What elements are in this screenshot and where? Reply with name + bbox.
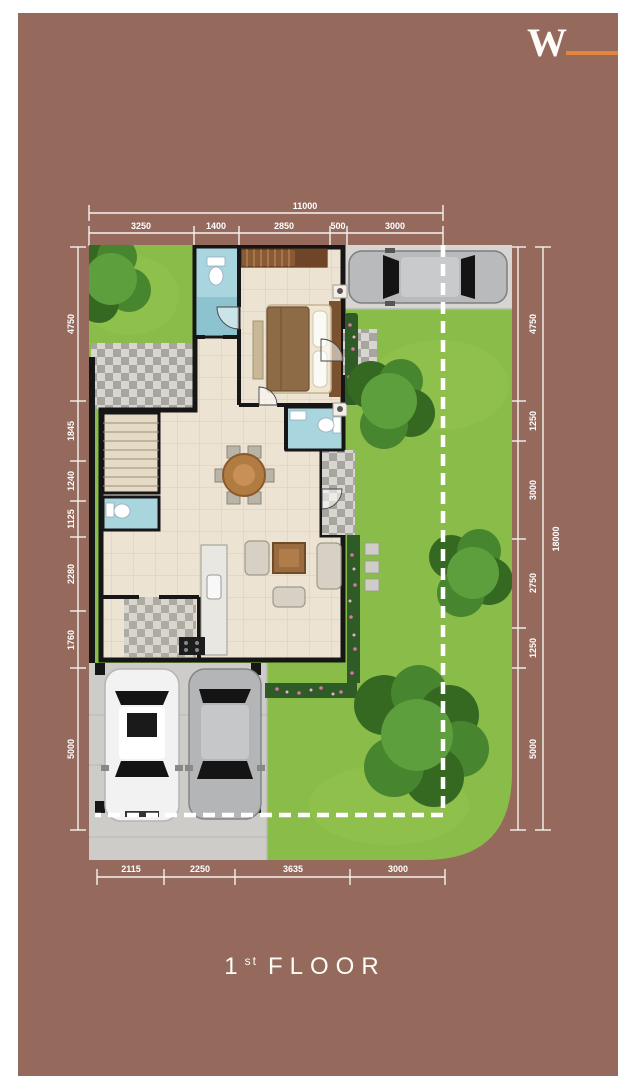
dim-bottom-2: 3635 — [283, 864, 303, 874]
dim-top-1: 1400 — [206, 221, 226, 231]
dim-left-6: 5000 — [66, 739, 76, 759]
dim-top-total: 11000 — [89, 201, 443, 221]
dim-left-0: 4750 — [66, 314, 76, 334]
wardrobe — [241, 249, 327, 267]
patio-pavers — [91, 343, 199, 409]
dim-bottom-0: 2115 — [121, 864, 141, 874]
sink-icon — [290, 411, 306, 420]
floor-ordinal: st — [245, 954, 258, 968]
floor-word: FLOOR — [268, 953, 386, 980]
boundary-wall — [89, 357, 95, 663]
dim-right-total: 18000 — [535, 247, 561, 830]
dim-right-0: 4750 — [528, 314, 538, 334]
stairs — [103, 413, 159, 493]
floor-title: 1stFLOOR — [18, 953, 592, 981]
dim-top-segments: 3250 1400 2850 500 3000 — [89, 221, 443, 246]
dim-left-segments: 4750 1845 1240 1125 2280 1760 5000 — [66, 247, 86, 830]
dim-right-3: 2750 — [528, 573, 538, 593]
dim-top-2: 2850 — [274, 221, 294, 231]
toilet-icon — [209, 267, 223, 285]
dim-left-5: 1760 — [66, 630, 76, 650]
brochure-canvas: W 11000 3250 1400 2850 — [18, 13, 618, 1076]
dim-right-total-label: 18000 — [551, 526, 561, 551]
brochure-page: W 11000 3250 1400 2850 — [0, 0, 630, 1091]
bathroom-3 — [103, 497, 159, 530]
car-icon — [101, 669, 183, 821]
sink-icon — [207, 575, 221, 599]
toilet-icon — [114, 504, 130, 518]
stepping-stones — [365, 543, 379, 591]
dim-left-1: 1845 — [66, 421, 76, 441]
car-icon — [349, 248, 507, 306]
toilet-icon — [318, 418, 334, 432]
stove-icon — [179, 637, 205, 655]
dim-left-4: 2280 — [66, 564, 76, 584]
dim-top-4: 3000 — [385, 221, 405, 231]
floor-number: 1 — [224, 953, 244, 980]
dim-right-4: 1250 — [528, 638, 538, 658]
dim-top-total-label: 11000 — [293, 201, 318, 211]
dim-left-2: 1240 — [66, 471, 76, 491]
dim-bottom-segments: 2115 2250 3635 3000 — [97, 864, 445, 885]
dim-bottom-3: 3000 — [388, 864, 408, 874]
dim-right-1: 1250 — [528, 411, 538, 431]
floor-plan — [89, 245, 512, 860]
dim-right-2: 3000 — [528, 480, 538, 500]
dim-bottom-1: 2250 — [190, 864, 210, 874]
dim-right-segments: 4750 1250 3000 2750 1250 5000 — [510, 247, 538, 830]
dim-left-3: 1125 — [66, 509, 76, 529]
dim-top-0: 3250 — [131, 221, 151, 231]
dim-top-3: 500 — [330, 221, 345, 231]
dim-right-5: 5000 — [528, 739, 538, 759]
car-icon — [185, 669, 265, 819]
